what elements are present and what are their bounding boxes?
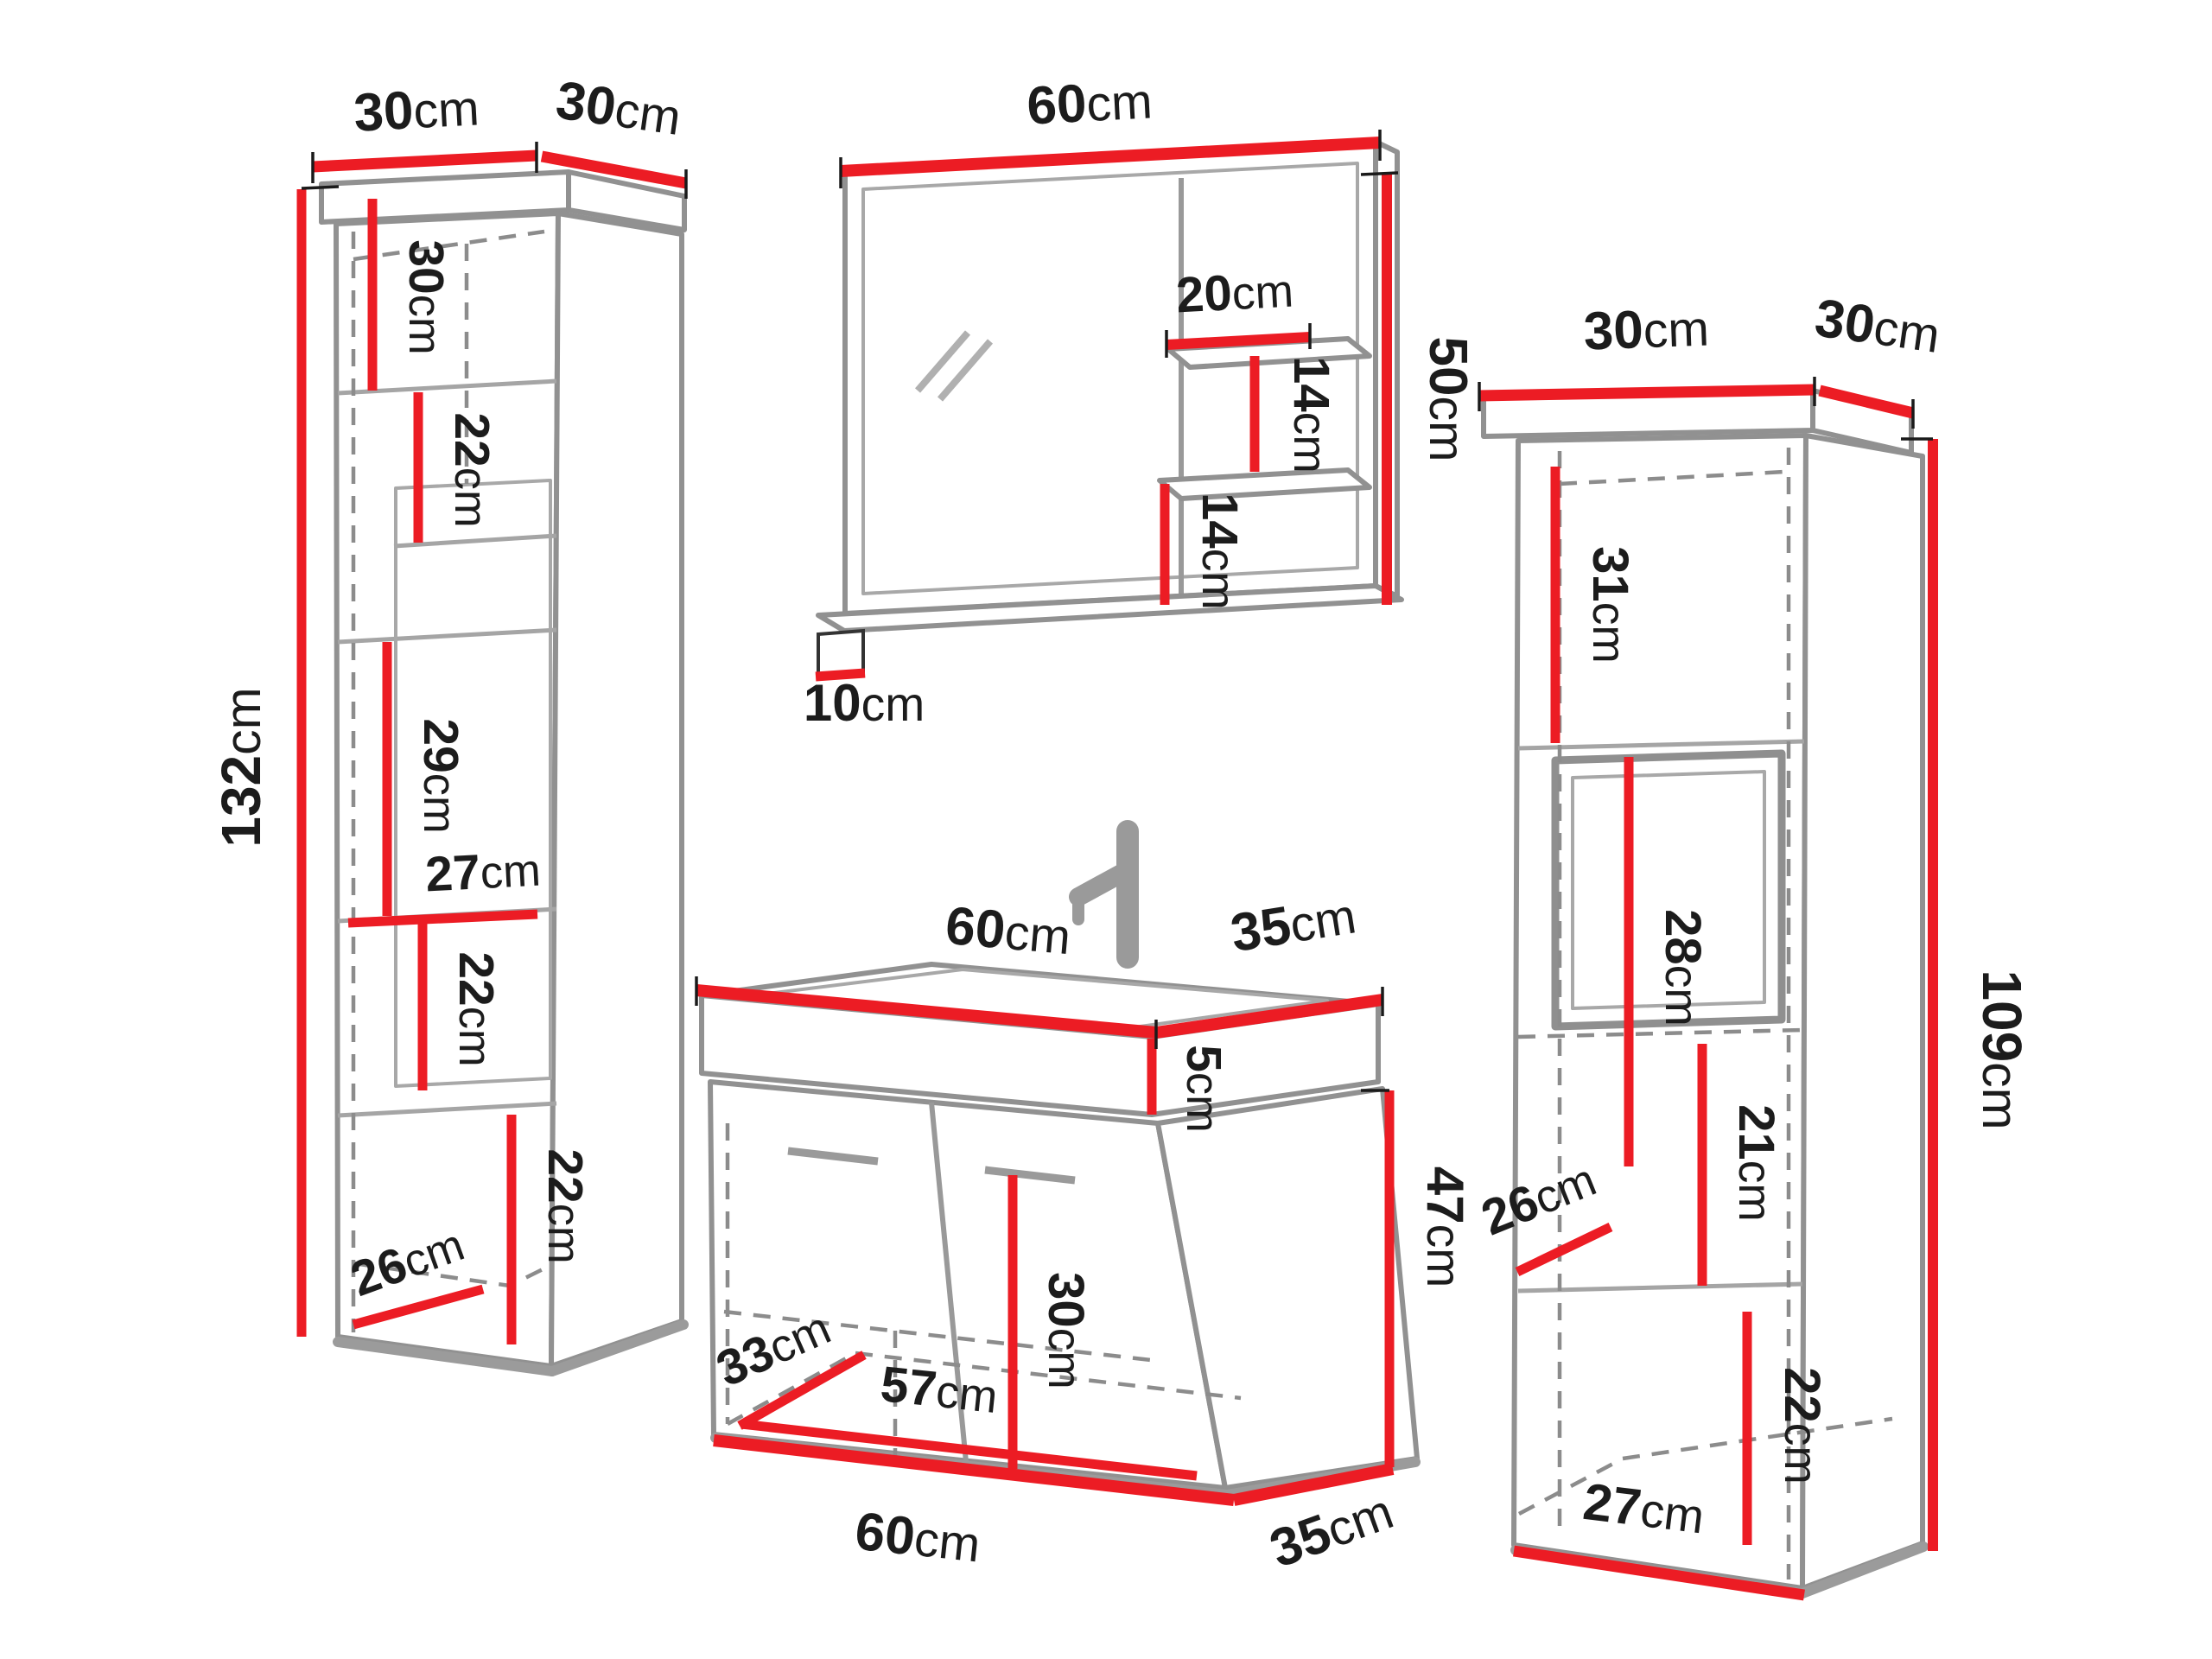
left-top-width-label: 30cm (353, 77, 480, 143)
dim-line-right-top-width (1479, 390, 1815, 396)
left-compartment-2-label: 22cm (444, 412, 499, 527)
furniture-dimensions-diagram: 30cm 30cm 132cm 30cm 22cm 29cm 27cm 22cm… (0, 0, 2212, 1659)
left-compartment-5-label: 22cm (537, 1148, 593, 1263)
right-height-label: 109cm (1971, 969, 2033, 1129)
tick (302, 187, 339, 188)
right-compartment-3-label: 21cm (1728, 1104, 1784, 1222)
left-height-label: 132cm (210, 687, 272, 847)
right-compartment-2-label: 28cm (1655, 909, 1711, 1027)
tick (1361, 173, 1398, 175)
left-compartment-1-label: 30cm (398, 239, 454, 354)
mirror-gap-upper-label: 14cm (1283, 356, 1339, 474)
mirror-gap-lower-label: 14cm (1192, 493, 1248, 610)
mirror-bottom-depth-label: 10cm (804, 674, 925, 732)
right-compartment-1-label: 31cm (1582, 546, 1638, 664)
left-inner-width-label: 27cm (424, 842, 542, 903)
sink-body-height-label: 47cm (1416, 1166, 1474, 1287)
right-compartment-4-label: 22cm (1774, 1367, 1830, 1484)
sink-basin-height-label: 5cm (1176, 1045, 1231, 1133)
left-compartment-3-label: 29cm (413, 718, 468, 833)
sink-inner-height-label: 30cm (1038, 1272, 1094, 1389)
right-top-width-label: 30cm (1583, 298, 1710, 362)
mirror-height-label: 50cm (1418, 337, 1478, 462)
mirror-top-width-label: 60cm (1026, 70, 1154, 136)
left-compartment-4-label: 22cm (448, 951, 504, 1066)
mirror-shelf-width-label: 20cm (1175, 262, 1295, 324)
